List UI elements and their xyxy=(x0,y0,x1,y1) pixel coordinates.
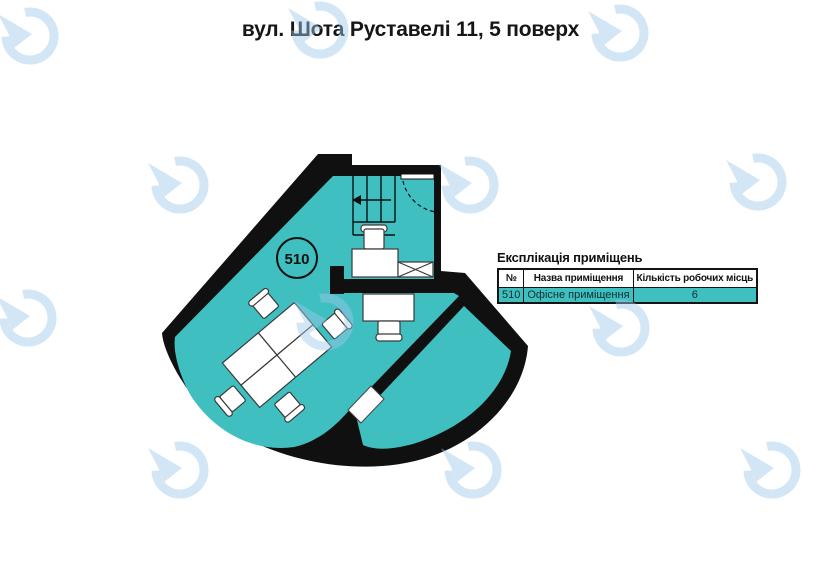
legend-cell-seats: 6 xyxy=(633,288,757,304)
legend-cell-name: Офісне приміщення xyxy=(524,288,633,304)
legend-header-name: Назва приміщення xyxy=(524,269,633,288)
legend-title: Експлікація приміщень xyxy=(497,250,737,265)
legend-table: № Назва приміщення Кількість робочих міс… xyxy=(497,268,758,304)
legend: Експлікація приміщень № Назва приміщення… xyxy=(497,250,737,304)
legend-header-row: № Назва приміщення Кількість робочих міс… xyxy=(498,269,757,288)
legend-header-seats: Кількість робочих місць xyxy=(633,269,757,288)
shaft-crossed-box xyxy=(398,262,433,277)
legend-cell-no: 510 xyxy=(498,288,524,304)
legend-data-row: 510 Офісне приміщення 6 xyxy=(498,288,757,304)
entrance-door-leaf xyxy=(401,174,434,179)
internal-wall-horizontal xyxy=(330,279,465,293)
room-number-label: 510 xyxy=(284,251,309,268)
legend-header-no: № xyxy=(498,269,524,288)
